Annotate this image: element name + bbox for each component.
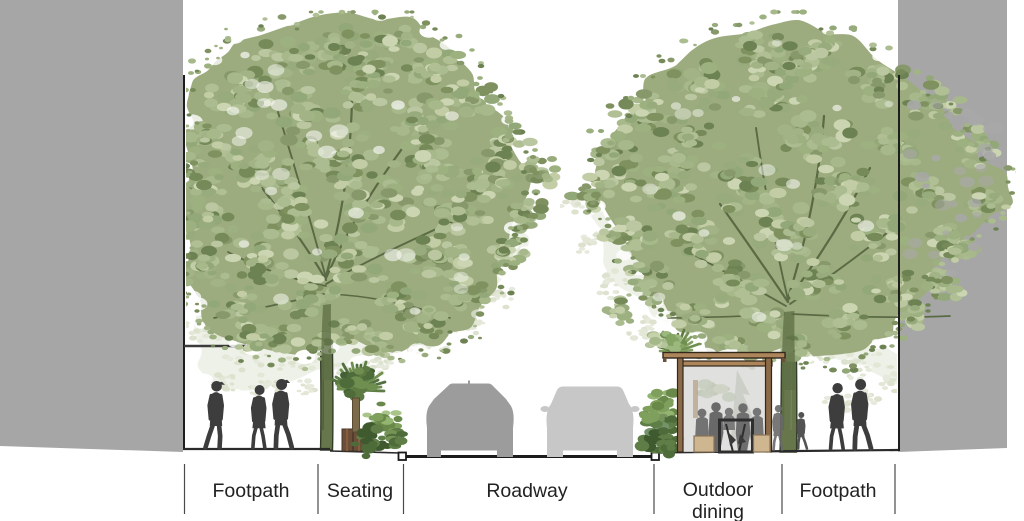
svg-text:Footpath: Footpath	[213, 480, 290, 502]
svg-text:dining: dining	[692, 501, 744, 521]
svg-text:Roadway: Roadway	[486, 480, 568, 502]
svg-text:Footpath: Footpath	[800, 480, 877, 502]
svg-text:Seating: Seating	[327, 480, 393, 502]
svg-text:Outdoor: Outdoor	[683, 479, 754, 501]
